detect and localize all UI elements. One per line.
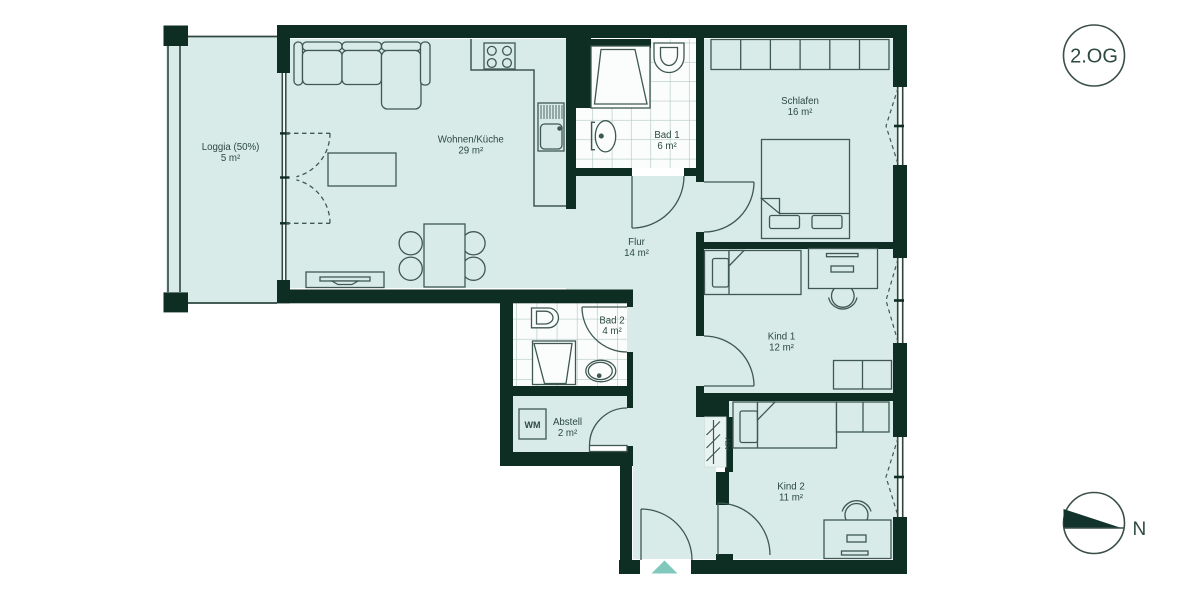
svg-text:4 m²: 4 m² [602, 326, 622, 337]
svg-text:Bad 1: Bad 1 [654, 130, 679, 141]
svg-text:ASV: ASV [725, 437, 732, 451]
svg-text:12 m²: 12 m² [769, 343, 795, 354]
svg-text:29 m²: 29 m² [458, 146, 484, 157]
svg-text:Schlafen: Schlafen [781, 96, 819, 107]
svg-text:N: N [1133, 519, 1147, 540]
svg-text:2.OG: 2.OG [1070, 46, 1118, 68]
svg-text:Kind 1: Kind 1 [768, 332, 795, 343]
svg-text:Loggia (50%): Loggia (50%) [202, 142, 260, 153]
svg-text:Kind 2: Kind 2 [777, 482, 804, 493]
svg-text:5 m²: 5 m² [221, 153, 241, 164]
svg-text:6 m²: 6 m² [657, 141, 677, 152]
svg-text:14 m²: 14 m² [624, 248, 650, 259]
svg-text:Flur: Flur [628, 237, 645, 248]
svg-text:WM: WM [525, 420, 541, 430]
svg-text:Bad 2: Bad 2 [599, 316, 624, 327]
svg-text:11 m²: 11 m² [779, 493, 804, 504]
svg-text:2 m²: 2 m² [558, 428, 578, 439]
svg-text:Wohnen/Küche: Wohnen/Küche [438, 135, 504, 146]
svg-text:16 m²: 16 m² [788, 107, 814, 118]
svg-text:Abstell: Abstell [553, 417, 582, 428]
